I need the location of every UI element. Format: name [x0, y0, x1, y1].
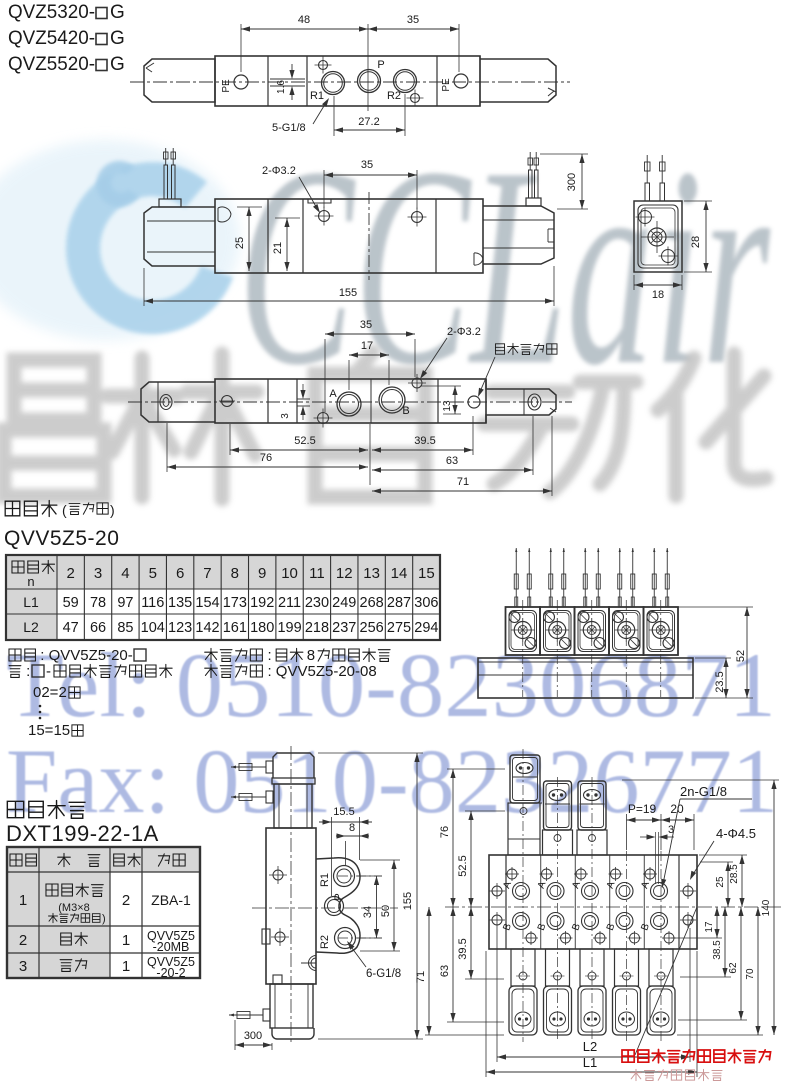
svg-text:P: P [377, 59, 384, 71]
svg-text:-20MB: -20MB [153, 940, 190, 954]
svg-text:2-Φ3.2: 2-Φ3.2 [262, 165, 296, 177]
svg-text:L1: L1 [583, 1055, 597, 1070]
svg-text:275: 275 [387, 620, 411, 636]
svg-text:B: B [402, 405, 409, 417]
svg-text:PE: PE [221, 79, 232, 93]
svg-text:4-Φ4.5: 4-Φ4.5 [716, 826, 756, 841]
svg-text:G: G [110, 54, 125, 75]
svg-text::: : [26, 663, 30, 680]
svg-text:: QVV5Z5-20-: : QVV5Z5-20- [40, 647, 133, 664]
svg-text:QVV5Z5-20: QVV5Z5-20 [4, 527, 119, 550]
svg-text:294: 294 [414, 620, 438, 636]
svg-text:25: 25 [715, 876, 726, 888]
svg-text:76: 76 [260, 452, 272, 464]
svg-text:300: 300 [244, 1030, 262, 1042]
svg-text::: : [267, 647, 271, 664]
svg-text:3: 3 [280, 413, 291, 419]
svg-text:5-G1/8: 5-G1/8 [272, 122, 306, 134]
svg-text:25: 25 [234, 237, 246, 249]
svg-text:155: 155 [402, 892, 414, 910]
svg-text:28: 28 [690, 236, 702, 248]
svg-text:21: 21 [272, 242, 284, 254]
svg-text:11: 11 [309, 565, 325, 582]
svg-text:249: 249 [332, 595, 356, 611]
svg-text:4: 4 [121, 565, 129, 582]
svg-text:140: 140 [761, 899, 772, 916]
svg-text:52: 52 [735, 650, 747, 662]
svg-text:237: 237 [332, 620, 356, 636]
svg-text:G: G [110, 28, 125, 49]
svg-text:6-G1/8: 6-G1/8 [366, 968, 401, 980]
svg-text:287: 287 [387, 595, 411, 611]
svg-text:211: 211 [278, 595, 301, 611]
svg-text:9: 9 [258, 565, 266, 582]
svg-text:2-Φ3.2: 2-Φ3.2 [447, 326, 481, 338]
svg-text:(M3×8: (M3×8 [58, 902, 90, 914]
svg-text:5: 5 [149, 565, 157, 582]
svg-text:8: 8 [349, 822, 355, 834]
svg-text:15: 15 [418, 565, 435, 582]
svg-text:L2: L2 [23, 619, 39, 635]
svg-text:G: G [110, 2, 125, 23]
svg-text:P=19: P=19 [628, 802, 657, 816]
svg-text:n: n [27, 574, 34, 589]
svg-text:QVZ5520-: QVZ5520- [8, 54, 95, 75]
svg-text:R1: R1 [310, 90, 324, 102]
svg-text:1: 1 [122, 958, 130, 975]
svg-text:13: 13 [442, 400, 453, 412]
svg-text:2: 2 [67, 565, 75, 582]
svg-text:23.5: 23.5 [714, 671, 726, 692]
svg-text:35: 35 [360, 319, 372, 331]
svg-text:35: 35 [407, 14, 419, 26]
svg-text:28.5: 28.5 [729, 864, 740, 884]
svg-text:14: 14 [391, 565, 408, 582]
svg-text:): ) [110, 502, 115, 518]
svg-text:34: 34 [362, 906, 374, 918]
svg-text:59: 59 [63, 595, 79, 611]
svg-text:116: 116 [141, 595, 164, 611]
svg-text:1: 1 [122, 932, 130, 949]
svg-text:2: 2 [122, 892, 130, 909]
svg-text:52.5: 52.5 [294, 435, 315, 447]
svg-text:76: 76 [439, 826, 451, 838]
svg-text:: QVV5Z5-20-08: : QVV5Z5-20-08 [267, 663, 376, 680]
svg-text:1: 1 [19, 892, 27, 909]
svg-text:218: 218 [305, 620, 329, 636]
svg-text:173: 173 [223, 595, 247, 611]
svg-text:R2: R2 [319, 935, 331, 949]
svg-text:48: 48 [298, 14, 310, 26]
svg-text:66: 66 [90, 620, 106, 636]
svg-text:8: 8 [231, 565, 239, 582]
svg-text:17: 17 [704, 921, 715, 933]
svg-text:39.5: 39.5 [414, 435, 435, 447]
svg-text:135: 135 [168, 595, 192, 611]
svg-text:L2: L2 [583, 1039, 597, 1054]
svg-text:27.2: 27.2 [358, 116, 379, 128]
svg-text:71: 71 [457, 476, 469, 488]
svg-text:-: - [46, 663, 51, 680]
svg-text:85: 85 [117, 620, 133, 636]
svg-text:39.5: 39.5 [457, 938, 469, 959]
svg-text:17: 17 [361, 340, 373, 352]
svg-text:268: 268 [360, 595, 384, 611]
svg-text:192: 192 [250, 595, 274, 611]
svg-text:155: 155 [339, 287, 357, 299]
svg-text:6: 6 [176, 565, 184, 582]
svg-text:10: 10 [281, 565, 298, 582]
svg-text:199: 199 [277, 620, 301, 636]
svg-text:R1: R1 [319, 873, 331, 887]
svg-text:QVZ5320-: QVZ5320- [8, 2, 95, 23]
svg-text:123: 123 [168, 620, 192, 636]
svg-text:38.5: 38.5 [712, 940, 723, 960]
svg-text:13: 13 [363, 565, 380, 582]
svg-text:230: 230 [305, 595, 329, 611]
svg-text:50: 50 [380, 905, 392, 917]
svg-text:1.6: 1.6 [276, 80, 287, 94]
svg-text:256: 256 [360, 620, 384, 636]
svg-text:15=15: 15=15 [28, 722, 70, 739]
svg-text:18: 18 [652, 289, 664, 301]
svg-text:QVZ5420-: QVZ5420- [8, 28, 95, 49]
svg-text:P: P [333, 893, 345, 900]
svg-text:A: A [329, 388, 337, 400]
svg-text:Fax: 0510-82326771: Fax: 0510-82326771 [6, 730, 778, 832]
svg-text:3: 3 [19, 958, 27, 975]
svg-text:2: 2 [19, 932, 27, 949]
svg-text:104: 104 [141, 620, 165, 636]
svg-text:78: 78 [90, 595, 106, 611]
svg-text:R2: R2 [387, 90, 401, 102]
svg-text:71: 71 [415, 971, 427, 983]
svg-text:7: 7 [203, 565, 211, 582]
svg-text:70: 70 [745, 968, 756, 980]
svg-text:154: 154 [195, 595, 219, 611]
svg-text:300: 300 [566, 173, 578, 191]
svg-text:142: 142 [195, 620, 219, 636]
svg-text:PE: PE [441, 78, 452, 92]
svg-text:306: 306 [414, 595, 438, 611]
svg-text:180: 180 [250, 620, 274, 636]
svg-text:12: 12 [336, 565, 353, 582]
svg-text:L1: L1 [23, 594, 39, 610]
svg-text:35: 35 [361, 159, 373, 171]
svg-text:62: 62 [728, 962, 739, 974]
svg-text:15.5: 15.5 [333, 806, 354, 818]
svg-text:63: 63 [446, 455, 458, 467]
svg-text:3: 3 [94, 565, 102, 582]
svg-text:47: 47 [63, 620, 79, 636]
svg-text:8: 8 [307, 647, 315, 664]
svg-text:(: ( [62, 502, 67, 518]
svg-text:ZBA-1: ZBA-1 [151, 892, 191, 908]
svg-text:): ) [102, 913, 106, 925]
svg-text:DXT199-22-1A: DXT199-22-1A [6, 821, 159, 846]
svg-text:-20-2: -20-2 [156, 966, 185, 980]
svg-text:02=2: 02=2 [33, 684, 67, 701]
svg-text:2n-G1/8: 2n-G1/8 [680, 784, 727, 799]
svg-text:161: 161 [223, 620, 247, 636]
svg-text:63: 63 [439, 965, 451, 977]
svg-text:97: 97 [117, 595, 133, 611]
svg-text:52.5: 52.5 [457, 855, 469, 876]
